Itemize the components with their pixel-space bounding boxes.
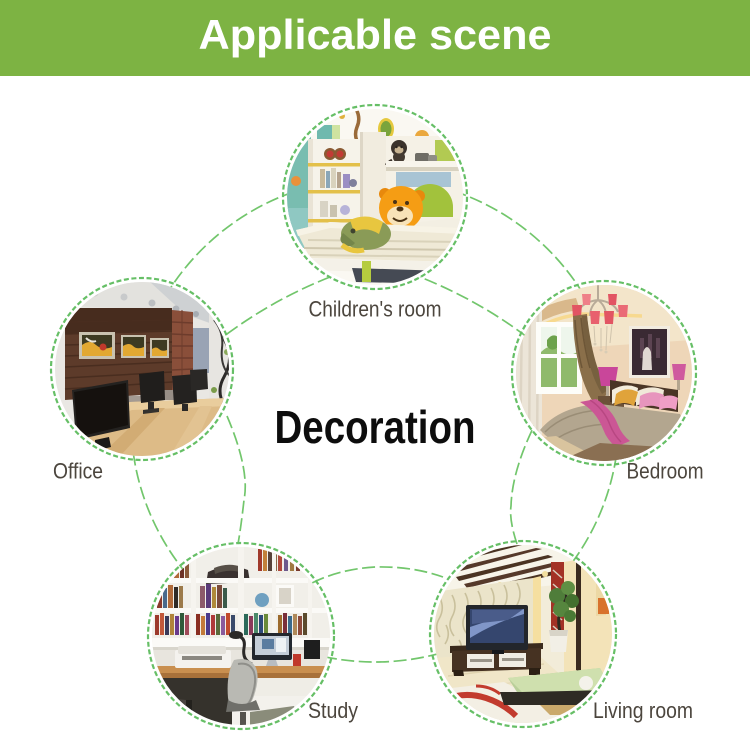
svg-text:Living room: Living room <box>593 698 693 723</box>
svg-text:Decoration: Decoration <box>275 401 476 453</box>
svg-text:Applicable scene: Applicable scene <box>199 11 552 58</box>
svg-text:Office: Office <box>53 459 103 484</box>
svg-text:Bedroom: Bedroom <box>627 459 704 484</box>
svg-text:Children's room: Children's room <box>309 297 442 322</box>
svg-text:Study: Study <box>308 698 359 723</box>
